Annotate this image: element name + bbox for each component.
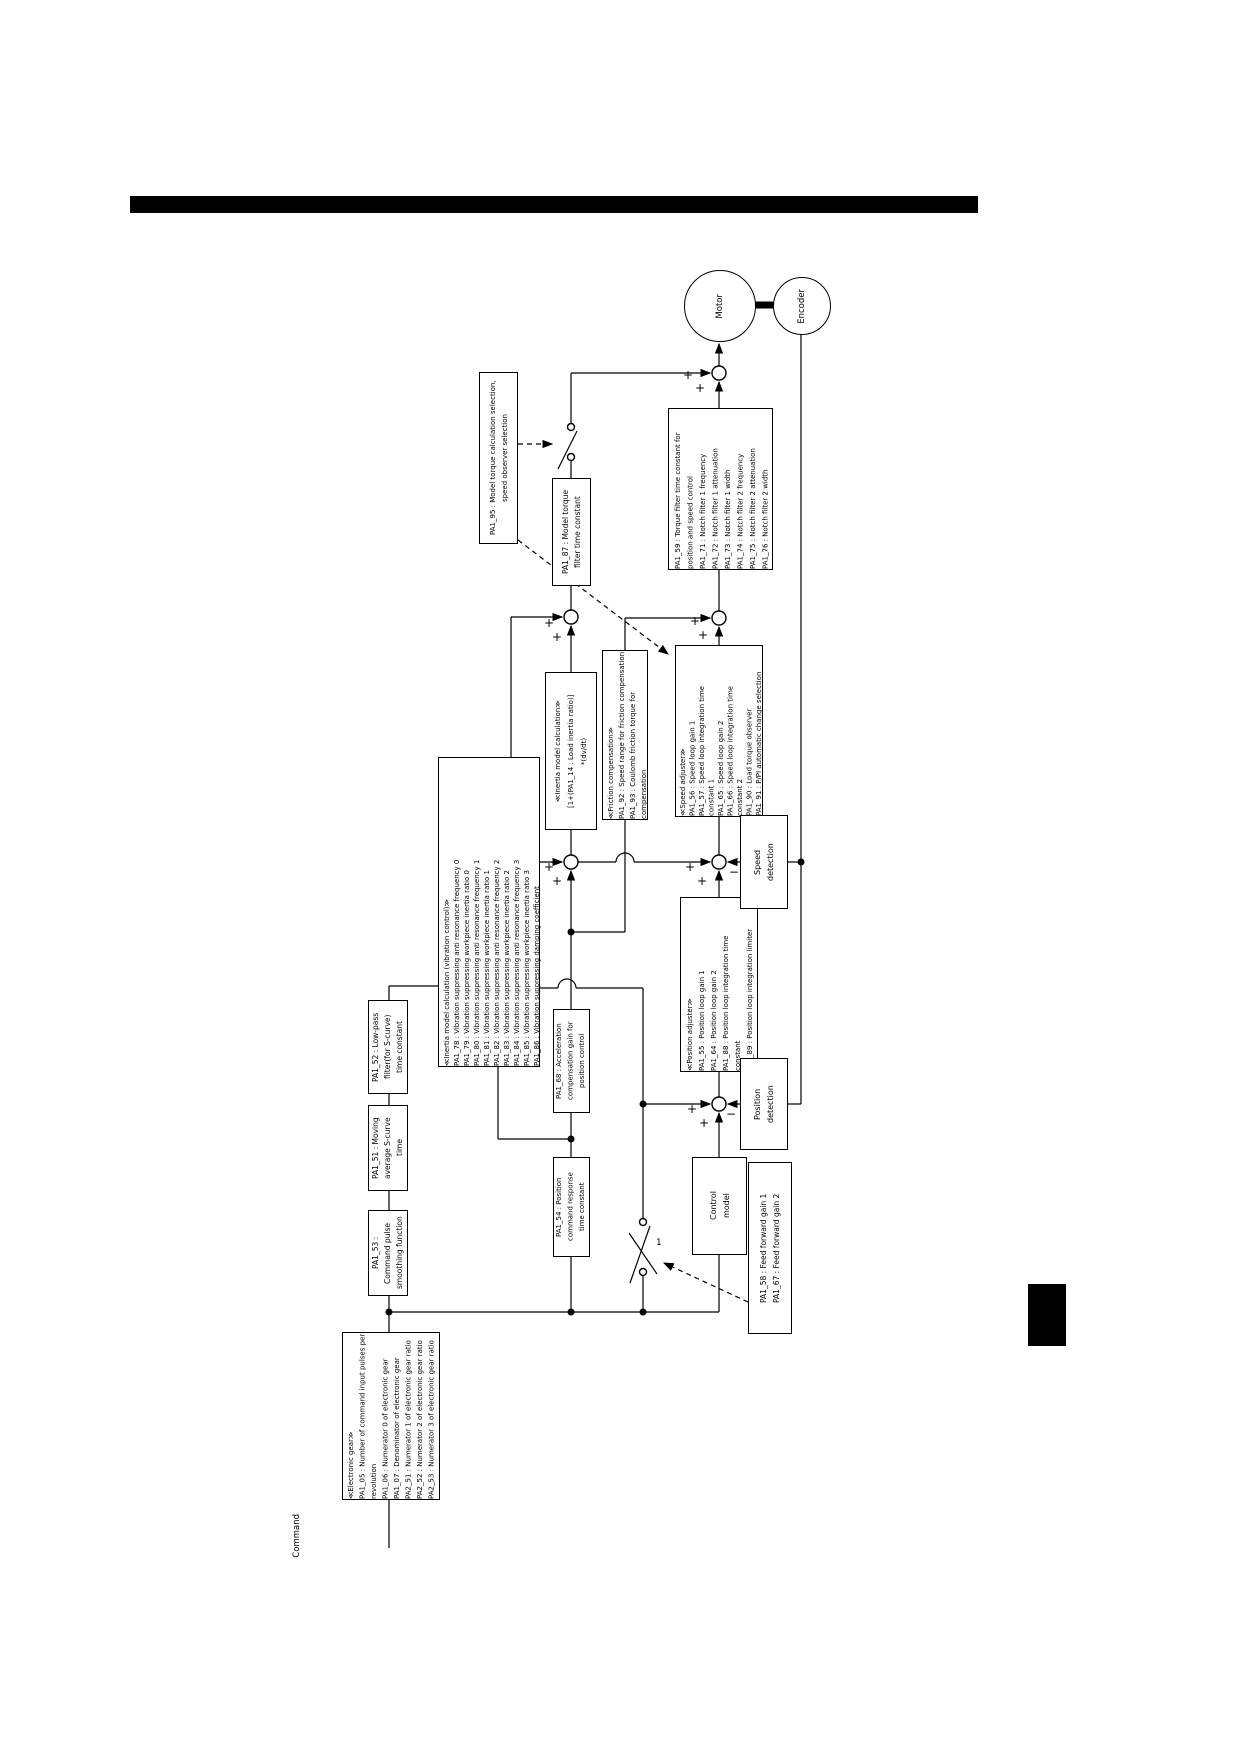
speed-adjuster-box: ≪Speed adjuster≫ PA1_56 : Speed loop gai…	[675, 645, 763, 817]
friction-compensation-box: ≪Friction compensation≫ PA1_92 : Speed r…	[602, 650, 648, 820]
electronic-gear-text: ≪Electronic gear≫ PA1_05 : Number of com…	[346, 1333, 438, 1502]
pa68-acceleration-compensation-box: PA1_68 : Acceleration compensation gain …	[553, 1009, 590, 1113]
plus-sign: +	[685, 861, 695, 873]
manual-page: Motor Encoder PA1_95 : Model torque calc…	[0, 0, 1240, 1754]
plus-sign: +	[544, 617, 554, 629]
diagram-wires	[0, 0, 1240, 1754]
switch-contact-1-label: 1	[656, 1238, 662, 1248]
inertia-model-calculation-box: ≪Inertia model calculation≫ [1+(PA1_14 :…	[545, 672, 597, 830]
electronic-gear-box: ≪Electronic gear≫ PA1_05 : Number of com…	[342, 1332, 440, 1500]
minus-sign: −	[729, 866, 739, 878]
inertia-calc-text: ≪Inertia model calculation≫ [1+(PA1_14 :…	[552, 673, 591, 829]
plus-sign: +	[690, 615, 700, 627]
speed-detection-box: Speed detection	[740, 815, 788, 909]
motor-circle: Motor	[684, 270, 756, 342]
pa68-text: PA1_68 : Acceleration compensation gain …	[554, 1010, 589, 1112]
motor-label: Motor	[715, 294, 725, 319]
position-detection-text: Position detection	[751, 1059, 777, 1149]
pa51-text: PA1_51 : Moving average S-curve time	[370, 1106, 406, 1190]
torque-filter-notch-box: PA1_59 : Torque filter time constant for…	[668, 408, 773, 570]
encoder-label: Encoder	[797, 289, 807, 324]
vibration-text: ≪Inertia model calculation (vibration co…	[442, 758, 542, 1069]
speed-detection-text: Speed detection	[751, 816, 777, 908]
plus-sign: +	[552, 875, 562, 887]
pa53-text: PA1_53 : Command pulse smoothing functio…	[370, 1211, 406, 1295]
plus-sign: +	[552, 631, 562, 643]
pa52-lowpass-filter-box: PA1_52 : Low-pass filter(for S-curve) ti…	[368, 1000, 408, 1094]
feed-forward-gain-box: PA1_58 : Feed forward gain 1 PA1_67 : Fe…	[748, 1162, 792, 1334]
position-detection-box: Position detection	[740, 1058, 788, 1150]
plus-sign: +	[687, 1103, 697, 1115]
pa95-model-torque-selection-box: PA1_95 : Model torque calculation select…	[479, 372, 518, 544]
position-adjuster-text: ≪Position adjuster≫ PA1_55 : Position lo…	[684, 898, 756, 1074]
pa87-text: PA1_87 : Model torque filter time consta…	[560, 479, 584, 585]
encoder-circle: Encoder	[773, 277, 831, 335]
plus-sign: +	[697, 875, 707, 887]
feed-forward-text: PA1_58 : Feed forward gain 1 PA1_67 : Fe…	[757, 1163, 783, 1333]
notch-text: PA1_59 : Torque filter time constant for…	[672, 409, 772, 572]
speed-adjuster-text: ≪Speed adjuster≫ PA1_56 : Speed loop gai…	[679, 646, 765, 819]
control-model-box: Control model	[692, 1157, 747, 1255]
minus-sign: −	[726, 1108, 736, 1120]
friction-text: ≪Friction compensation≫ PA1_92 : Speed r…	[606, 651, 650, 822]
pa51-moving-average-box: PA1_51 : Moving average S-curve time	[368, 1105, 408, 1191]
plus-sign: +	[683, 369, 693, 381]
pa95-text: PA1_95 : Model torque calculation select…	[487, 373, 511, 543]
pa53-command-pulse-smoothing-box: PA1_53 : Command pulse smoothing functio…	[368, 1210, 408, 1296]
command-input-label: Command	[292, 1514, 302, 1558]
control-model-text: Control model	[707, 1158, 733, 1254]
pa54-position-command-response-box: PA1_54 : Position command response time …	[553, 1157, 590, 1257]
position-adjuster-box: ≪Position adjuster≫ PA1_55 : Position lo…	[680, 897, 758, 1072]
pa52-text: PA1_52 : Low-pass filter(for S-curve) ti…	[370, 1001, 406, 1093]
command-input-label-wrap: Command	[288, 1505, 306, 1567]
plus-sign: +	[698, 629, 708, 641]
plus-sign: +	[695, 382, 705, 394]
pa54-text: PA1_54 : Position command response time …	[554, 1158, 589, 1256]
plus-sign: +	[544, 861, 554, 873]
pa87-model-torque-filter-box: PA1_87 : Model torque filter time consta…	[552, 478, 591, 586]
plus-sign: +	[699, 1117, 709, 1129]
vibration-control-box: ≪Inertia model calculation (vibration co…	[438, 757, 540, 1067]
